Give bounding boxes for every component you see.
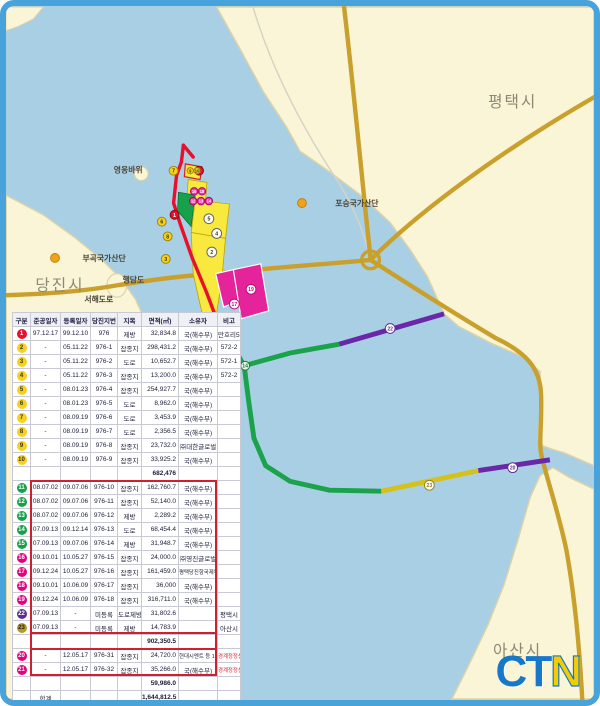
table-cell: 97.12.17 [31, 327, 61, 341]
table-cell: 08.01.23 [61, 397, 91, 411]
table-cell: 976-14 [91, 537, 118, 551]
table-row: 4-05.11.22976-3잡종지13,200.0국(해수부)572-2 [13, 369, 241, 383]
table-cell [218, 551, 241, 565]
table-cell: 05.11.22 [61, 355, 91, 369]
table-row: 9-08.09.19976-8잡종지23,732.0㈜대한글로벌 [13, 439, 241, 453]
table-cell [179, 467, 218, 481]
table-cell: 07.09.13 [31, 607, 61, 621]
marker-label: 6 [160, 220, 163, 226]
logo-letter: T [525, 647, 550, 696]
table-cell: 08.07.02 [31, 495, 61, 509]
marker-label: 5 [207, 217, 210, 223]
table-cell: 976-5 [91, 397, 118, 411]
table-cell: 미등록 [91, 607, 118, 621]
table-cell: 합계 [31, 691, 61, 705]
table-cell: 09.12.24 [31, 565, 61, 579]
marker-label: 7 [172, 169, 175, 175]
table-cell [91, 691, 118, 705]
subtotal-row: 902,350.5 [13, 635, 241, 649]
table-cell: 572-2 [218, 341, 241, 355]
table-cell: 976-16 [91, 565, 118, 579]
number-circle: 19 [17, 595, 27, 605]
table-row: 1308.07.0209.07.06976-12제방2,289.2국(해수부) [13, 509, 241, 523]
place-label: 행담도 [123, 274, 145, 284]
table-cell: 1,644,812.5 [142, 691, 179, 705]
row-number-badge: 1 [13, 327, 31, 341]
table-row: 7-08.09.19976-6도로3,453.9국(해수부) [13, 411, 241, 425]
table-cell [118, 467, 142, 481]
table-cell: 07.09.13 [31, 537, 61, 551]
table-cell: 국(해수부) [179, 495, 218, 509]
table-cell: 10.05.27 [61, 551, 91, 565]
table-cell: 976-12 [91, 509, 118, 523]
table-cell: - [31, 649, 61, 663]
marker-label: 16 [192, 189, 197, 194]
table-cell: 35,266.0 [142, 663, 179, 677]
table-row: 1407.09.1309.12.14976-13도로68,454.4국(해수부) [13, 523, 241, 537]
table-cell: 국(해수부) [179, 355, 218, 369]
table-cell: 10.06.09 [61, 579, 91, 593]
column-header: 구분 [13, 313, 31, 327]
marker-label: 23 [427, 483, 433, 489]
subtotal-row: 682,476 [13, 467, 241, 481]
table-row: 1809.10.0110.06.09976-17잡종지36,000국(해수부) [13, 579, 241, 593]
number-circle: 7 [17, 413, 27, 423]
table-cell: - [31, 453, 61, 467]
table-cell: 도로 [118, 523, 142, 537]
table-cell [179, 621, 218, 635]
table-row: 8-08.09.19976-7도로2,356.5국(해수부) [13, 425, 241, 439]
table-cell: 국(해수부) [179, 425, 218, 439]
table-row: 1208.07.0209.07.06976-11잡종지52,140.0국(해수부… [13, 495, 241, 509]
marker-label: 4 [215, 231, 218, 237]
table-cell: 잡종지 [118, 551, 142, 565]
table-cell: 2,289.2 [142, 509, 179, 523]
table-cell [61, 467, 91, 481]
table-cell: 국(해수부) [179, 579, 218, 593]
table-cell: 976-1 [91, 341, 118, 355]
parcel-table: 구분준공일자등록일자당진지번지목면적(㎡)소유자비고 197.12.1799.1… [12, 312, 241, 705]
ctn-logo: CTN [496, 650, 580, 694]
table-cell [218, 453, 241, 467]
table-cell [218, 439, 241, 453]
table-cell [61, 635, 91, 649]
table-cell: 평택시 [218, 607, 241, 621]
row-number-badge: 6 [13, 397, 31, 411]
marker-label: 8 [166, 234, 169, 240]
row-number-badge: 21 [13, 663, 31, 677]
table-cell: - [31, 383, 61, 397]
table-cell: 976-8 [91, 439, 118, 453]
table-cell: 10.06.09 [61, 593, 91, 607]
table-cell: 07.09.13 [31, 621, 61, 635]
row-number-badge: 5 [13, 383, 31, 397]
table-cell: ㈜영진글로벌 [179, 551, 218, 565]
table-cell: 976-7 [91, 425, 118, 439]
row-number-badge: 19 [13, 593, 31, 607]
table-cell: - [31, 341, 61, 355]
number-circle: 21 [17, 665, 27, 675]
row-number-badge: 8 [13, 425, 31, 439]
table-cell [179, 635, 218, 649]
map-marker: 8 [163, 232, 172, 241]
table-header-row: 구분준공일자등록일자당진지번지목면적(㎡)소유자비고 [13, 313, 241, 327]
industrial-dot [51, 254, 60, 263]
table-cell: 976 [91, 327, 118, 341]
table-cell: 976-31 [91, 649, 118, 663]
map-marker: 2 [207, 247, 217, 257]
table-cell: 976-4 [91, 383, 118, 397]
number-circle: 14 [17, 525, 27, 535]
logo-letter: N [550, 647, 580, 696]
row-number-badge: 3 [13, 355, 31, 369]
row-number-badge: 15 [13, 537, 31, 551]
row-number-badge: 12 [13, 495, 31, 509]
table-cell: 12.05.17 [61, 649, 91, 663]
row-number-badge: 17 [13, 565, 31, 579]
table-cell: 33,925.2 [142, 453, 179, 467]
table-cell [218, 495, 241, 509]
table-row: 21-12.05.17976-32잡종지35,266.0국(해수부)경계정정신청 [13, 663, 241, 677]
table-cell [91, 635, 118, 649]
table-cell: 평택당진항국제부두 [179, 565, 218, 579]
row-number-badge: 23 [13, 621, 31, 635]
table-cell: 09.10.01 [31, 579, 61, 593]
table-cell: 572-2 [218, 369, 241, 383]
marker-label: 14 [242, 364, 248, 370]
table-cell [13, 677, 31, 691]
table-cell: 잡종지 [118, 579, 142, 593]
table-cell [31, 467, 61, 481]
table-cell: 09.12.14 [61, 523, 91, 537]
map-marker: 13 [197, 197, 204, 204]
table-cell [179, 677, 218, 691]
map-marker: 14 [241, 361, 250, 370]
column-header: 면적(㎡) [142, 313, 179, 327]
table-cell: 05.11.22 [61, 369, 91, 383]
table-cell [118, 691, 142, 705]
table-cell: 국(해수부) [179, 369, 218, 383]
table-cell: 잡종지 [118, 481, 142, 495]
table-cell: 2,356.5 [142, 425, 179, 439]
number-circle: 4 [17, 371, 27, 381]
table-cell: 08.07.02 [31, 509, 61, 523]
table-cell: 52,140.0 [142, 495, 179, 509]
table-cell: 경계정정신청 [218, 649, 241, 663]
marker-label: 17 [232, 302, 238, 308]
table-cell [179, 691, 218, 705]
table-cell [31, 677, 61, 691]
table-cell: 24,000.0 [142, 551, 179, 565]
table-cell: 국(해수부) [179, 523, 218, 537]
map-marker: 4 [212, 229, 222, 239]
number-circle: 22 [17, 609, 27, 619]
table-cell [218, 467, 241, 481]
logo-letter: C [496, 647, 526, 696]
table-cell [218, 425, 241, 439]
table-cell: 잡종지 [118, 495, 142, 509]
number-circle: 23 [17, 623, 27, 633]
table-cell: 잡종지 [118, 383, 142, 397]
table-cell: 99.12.10 [61, 327, 91, 341]
row-number-badge: 10 [13, 453, 31, 467]
table-cell: - [61, 607, 91, 621]
table-cell: 3,453.9 [142, 411, 179, 425]
marker-label: 12 [191, 199, 196, 204]
table-cell: 도로 [118, 355, 142, 369]
table-cell [218, 411, 241, 425]
table-row: 1609.10.0110.05.27976-15잡종지24,000.0㈜영진글로… [13, 551, 241, 565]
table-cell: 국(해수부) [179, 411, 218, 425]
table-cell: 제방 [118, 327, 142, 341]
table-cell: ㈜대한글로벌 [179, 439, 218, 453]
map-marker: 6 [157, 217, 166, 226]
table-cell: 잡종지 [118, 341, 142, 355]
table-cell: 국(해수부) [179, 481, 218, 495]
map-marker: 9 [187, 168, 193, 174]
marker-label: 1 [173, 213, 176, 219]
table-cell: 161,459.0 [142, 565, 179, 579]
table-row: 20-12.05.17976-31잡종지24,720.0현대시멘트 등 12경계… [13, 649, 241, 663]
place-label: 서해도로 [84, 294, 113, 304]
row-number-badge: 16 [13, 551, 31, 565]
table-cell: 잡종지 [118, 453, 142, 467]
table-cell [179, 607, 218, 621]
row-number-badge: 7 [13, 411, 31, 425]
map-marker: 19 [246, 284, 256, 294]
marker-label: 2 [210, 250, 213, 256]
table-cell: 976-32 [91, 663, 118, 677]
table-cell: - [31, 397, 61, 411]
table-cell: 잡종지 [118, 649, 142, 663]
table-cell: 08.09.19 [61, 439, 91, 453]
table-cell [61, 677, 91, 691]
table-cell: 10.05.27 [61, 565, 91, 579]
table-cell [218, 523, 241, 537]
table-cell: 08.09.19 [61, 425, 91, 439]
table-cell: 국(해수부) [179, 341, 218, 355]
row-number-badge: 13 [13, 509, 31, 523]
map-marker: 18 [198, 188, 205, 195]
city-label: 평택시 [488, 93, 537, 111]
column-header: 소유자 [179, 313, 218, 327]
number-circle: 18 [17, 581, 27, 591]
table-cell: 09.07.06 [61, 537, 91, 551]
table-cell [218, 635, 241, 649]
row-number-badge: 2 [13, 341, 31, 355]
table-row: 6-08.01.23976-5도로8,962.0국(해수부) [13, 397, 241, 411]
column-header: 등록일자 [61, 313, 91, 327]
total-row: 합계1,644,812.5 [13, 691, 241, 705]
table-cell: 09.07.06 [61, 509, 91, 523]
table-cell [61, 691, 91, 705]
table-cell: 아산시 [218, 621, 241, 635]
table-cell: 만호리572 [218, 327, 241, 341]
marker-label: 19 [248, 287, 254, 293]
table-cell: 10,652.7 [142, 355, 179, 369]
table-cell: 제방 [118, 509, 142, 523]
table-cell: 국(해수부) [179, 453, 218, 467]
table-cell: 976-3 [91, 369, 118, 383]
marker-label: 3 [164, 257, 167, 263]
table-cell [218, 677, 241, 691]
map-marker: 10 [194, 168, 200, 174]
number-circle: 12 [17, 497, 27, 507]
number-circle: 9 [17, 441, 27, 451]
table-cell: 국(해수부) [179, 327, 218, 341]
table-cell: 976-11 [91, 495, 118, 509]
table-cell: 14,783.9 [142, 621, 179, 635]
row-number-badge: 14 [13, 523, 31, 537]
table-cell: 572-1 [218, 355, 241, 369]
table-cell [91, 467, 118, 481]
table-cell: - [31, 425, 61, 439]
map-marker: 20 [508, 463, 518, 473]
table-cell: 23,732.0 [142, 439, 179, 453]
table-cell: 13,200.0 [142, 369, 179, 383]
table-cell: 09.07.06 [61, 481, 91, 495]
column-header: 비고 [218, 313, 241, 327]
table-cell: 902,350.5 [142, 635, 179, 649]
table-cell: 도로 [118, 397, 142, 411]
number-circle: 3 [17, 357, 27, 367]
table-cell: 976-10 [91, 481, 118, 495]
table-row: 2-05.11.22976-1잡종지298,431.2국(해수부)572-2 [13, 341, 241, 355]
place-label: 포승국가산단 [335, 198, 379, 208]
map-marker: 22 [385, 324, 395, 334]
table-cell: 도로 [118, 425, 142, 439]
number-circle: 1 [17, 329, 27, 339]
map-marker: 23 [424, 480, 434, 490]
number-circle: 2 [17, 343, 27, 353]
table-cell: 잡종지 [118, 663, 142, 677]
table-cell [218, 593, 241, 607]
table-cell: 976-13 [91, 523, 118, 537]
column-header: 당진지번 [91, 313, 118, 327]
marker-label: 22 [387, 326, 393, 332]
table-cell [118, 635, 142, 649]
table-row: 197.12.1799.12.10976제방32,834.8국(해수부)만호리5… [13, 327, 241, 341]
map-marker: 17 [229, 299, 239, 309]
table-cell: - [31, 663, 61, 677]
number-circle: 5 [17, 385, 27, 395]
marker-label: 13 [199, 199, 204, 204]
map-marker: 5 [204, 214, 214, 224]
map-marker: 16 [190, 188, 197, 195]
table-cell: 잡종지 [118, 565, 142, 579]
number-circle: 11 [17, 483, 27, 493]
table-cell: 08.09.19 [61, 411, 91, 425]
table-cell: 국(해수부) [179, 593, 218, 607]
table-cell: 298,431.2 [142, 341, 179, 355]
table-cell: 제방 [118, 537, 142, 551]
table-cell [91, 677, 118, 691]
table-cell: 국(해수부) [179, 537, 218, 551]
table-cell: 976-15 [91, 551, 118, 565]
marker-label: 10 [195, 168, 200, 173]
marker-label: 20 [510, 466, 516, 472]
table-cell [218, 509, 241, 523]
table-cell: 국(해수부) [179, 509, 218, 523]
industrial-dot [298, 199, 307, 208]
map-frame: 1716839101618121314542171914222320 평택시당진… [0, 0, 600, 706]
table-cell: 국(해수부) [179, 383, 218, 397]
table-row: 1108.07.0209.07.06976-10잡종지162,760.7국(해수… [13, 481, 241, 495]
table-cell: 254,927.7 [142, 383, 179, 397]
table-cell: 국(해수부) [179, 397, 218, 411]
number-circle: 6 [17, 399, 27, 409]
table-cell [218, 691, 241, 705]
table-cell: 976-9 [91, 453, 118, 467]
marker-label: 18 [200, 189, 205, 194]
table-cell: 국(해수부) [179, 663, 218, 677]
table-cell: 잡종지 [118, 439, 142, 453]
table-cell: 32,834.8 [142, 327, 179, 341]
table-cell: 682,476 [142, 467, 179, 481]
table-cell [218, 481, 241, 495]
table-cell: 잡종지 [118, 593, 142, 607]
column-header: 준공일자 [31, 313, 61, 327]
table-cell: 31,802.6 [142, 607, 179, 621]
table-cell: 08.01.23 [61, 383, 91, 397]
marker-label: 14 [207, 199, 212, 204]
number-circle: 10 [17, 455, 27, 465]
table-cell: - [31, 355, 61, 369]
place-label: 부곡국가산단 [82, 253, 126, 263]
table-row: 2307.09.13-미등록제방14,783.9아산시 [13, 621, 241, 635]
map-marker: 3 [161, 255, 170, 264]
parcel-table-panel: 구분준공일자등록일자당진지번지목면적(㎡)소유자비고 197.12.1799.1… [12, 312, 240, 705]
table-cell: 36,000 [142, 579, 179, 593]
row-number-badge: 20 [13, 649, 31, 663]
table-row: 1507.09.1309.07.06976-14제방31,948.7국(해수부) [13, 537, 241, 551]
table-cell [218, 383, 241, 397]
table-row: 2207.09.13-미등록도로제방31,802.6평택시 [13, 607, 241, 621]
table-cell: 8,962.0 [142, 397, 179, 411]
table-cell: 68,454.4 [142, 523, 179, 537]
map-marker: 14 [205, 197, 212, 204]
number-circle: 20 [17, 651, 27, 661]
row-number-badge: 22 [13, 607, 31, 621]
table-cell: 31,948.7 [142, 537, 179, 551]
table-cell: 12.05.17 [61, 663, 91, 677]
table-cell: 08.09.19 [61, 453, 91, 467]
number-circle: 8 [17, 427, 27, 437]
table-cell: 미등록 [91, 621, 118, 635]
number-circle: 16 [17, 553, 27, 563]
map-marker: 1 [170, 210, 179, 219]
subtotal-row: 59,986.0 [13, 677, 241, 691]
table-cell: 09.10.01 [31, 551, 61, 565]
city-label: 당진시 [35, 276, 84, 294]
table-cell: 162,760.7 [142, 481, 179, 495]
table-cell: 08.07.02 [31, 481, 61, 495]
row-number-badge: 4 [13, 369, 31, 383]
row-number-badge: 18 [13, 579, 31, 593]
table-cell: 976-18 [91, 593, 118, 607]
table-cell: 제방 [118, 621, 142, 635]
table-cell: - [31, 411, 61, 425]
table-cell [218, 579, 241, 593]
column-header: 지목 [118, 313, 142, 327]
table-cell: - [61, 621, 91, 635]
table-row: 10-08.09.19976-9잡종지33,925.2국(해수부) [13, 453, 241, 467]
table-cell: 59,986.0 [142, 677, 179, 691]
table-cell: 도로 [118, 411, 142, 425]
map-marker: 12 [189, 197, 196, 204]
number-circle: 15 [17, 539, 27, 549]
table-cell [218, 537, 241, 551]
